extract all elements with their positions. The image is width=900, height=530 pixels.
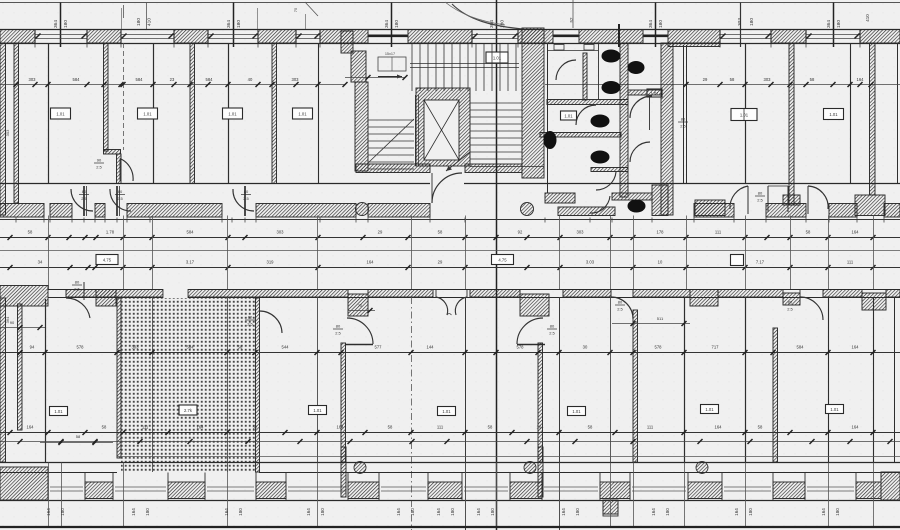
svg-text:164: 164 xyxy=(46,508,51,516)
svg-text:180: 180 xyxy=(136,18,142,26)
svg-text:164: 164 xyxy=(224,508,229,516)
svg-text:364: 364 xyxy=(226,20,232,28)
svg-text:58: 58 xyxy=(730,77,735,82)
svg-text:511: 511 xyxy=(657,316,664,321)
svg-text:180: 180 xyxy=(835,508,840,516)
svg-text:2.5: 2.5 xyxy=(787,307,793,312)
svg-text:164: 164 xyxy=(537,425,545,430)
svg-text:584: 584 xyxy=(187,230,195,235)
svg-text:303: 303 xyxy=(29,77,37,82)
svg-text:364: 364 xyxy=(53,20,59,28)
svg-text:303: 303 xyxy=(577,230,585,235)
svg-text:3.03: 3.03 xyxy=(586,260,595,265)
svg-text:3.17: 3.17 xyxy=(186,260,195,265)
svg-text:178: 178 xyxy=(657,230,665,235)
svg-text:180: 180 xyxy=(575,508,580,516)
svg-text:80: 80 xyxy=(618,300,623,305)
svg-text:1.01: 1.01 xyxy=(705,407,714,412)
svg-text:23: 23 xyxy=(170,77,175,82)
svg-text:1.01: 1.01 xyxy=(829,112,838,117)
svg-text:180: 180 xyxy=(749,18,755,26)
svg-text:164: 164 xyxy=(197,425,205,430)
svg-text:2.5: 2.5 xyxy=(247,322,253,327)
svg-text:180: 180 xyxy=(450,508,455,516)
svg-text:34: 34 xyxy=(38,260,43,265)
svg-text:2.5: 2.5 xyxy=(243,196,249,201)
svg-text:58: 58 xyxy=(488,425,493,430)
svg-text:180: 180 xyxy=(410,508,415,516)
svg-text:29: 29 xyxy=(703,77,708,82)
svg-text:180: 180 xyxy=(60,508,65,516)
svg-text:303: 303 xyxy=(764,77,772,82)
svg-text:2.5: 2.5 xyxy=(74,287,80,292)
svg-text:410: 410 xyxy=(147,18,153,26)
svg-text:58: 58 xyxy=(438,230,443,235)
svg-text:180: 180 xyxy=(490,508,495,516)
svg-text:1.01: 1.01 xyxy=(56,112,65,117)
svg-text:80: 80 xyxy=(248,315,253,320)
svg-text:1.01: 1.01 xyxy=(143,112,152,117)
svg-text:80: 80 xyxy=(75,280,80,285)
svg-text:584: 584 xyxy=(187,345,195,350)
svg-text:111: 111 xyxy=(847,260,854,265)
svg-text:1.01: 1.01 xyxy=(572,409,581,414)
svg-text:15x17: 15x17 xyxy=(385,52,395,56)
svg-text:80: 80 xyxy=(336,324,341,329)
svg-text:717: 717 xyxy=(712,345,720,350)
svg-text:180: 180 xyxy=(748,508,753,516)
svg-text:2.7k: 2.7k xyxy=(184,408,193,413)
svg-text:164: 164 xyxy=(651,508,656,516)
svg-text:577: 577 xyxy=(375,345,383,350)
svg-text:58: 58 xyxy=(102,425,107,430)
svg-text:1.01: 1.01 xyxy=(564,114,573,119)
svg-text:70: 70 xyxy=(358,303,363,308)
svg-text:80: 80 xyxy=(82,189,87,194)
svg-text:364: 364 xyxy=(826,20,832,28)
svg-text:2.5: 2.5 xyxy=(617,307,623,312)
svg-text:111: 111 xyxy=(647,425,654,430)
svg-text:1.01: 1.01 xyxy=(493,56,502,61)
svg-text:80: 80 xyxy=(681,117,686,122)
svg-text:164: 164 xyxy=(715,425,723,430)
svg-text:578: 578 xyxy=(655,345,663,350)
svg-text:80: 80 xyxy=(118,189,123,194)
svg-text:180: 180 xyxy=(394,20,400,28)
svg-text:164: 164 xyxy=(561,508,566,516)
svg-text:58: 58 xyxy=(810,77,815,82)
svg-text:164: 164 xyxy=(367,260,375,265)
svg-text:164: 164 xyxy=(476,508,481,516)
svg-text:111: 111 xyxy=(437,425,444,430)
svg-text:2.5: 2.5 xyxy=(335,331,341,336)
svg-text:164: 164 xyxy=(852,425,860,430)
svg-text:164: 164 xyxy=(852,230,860,235)
svg-text:58: 58 xyxy=(588,425,593,430)
svg-text:584: 584 xyxy=(206,77,214,82)
svg-text:180: 180 xyxy=(63,20,69,28)
svg-text:1.01: 1.01 xyxy=(54,409,63,414)
svg-text:40: 40 xyxy=(248,77,253,82)
svg-text:2.5: 2.5 xyxy=(757,198,763,203)
svg-text:164: 164 xyxy=(396,508,401,516)
svg-text:180: 180 xyxy=(320,508,325,516)
svg-text:2.5: 2.5 xyxy=(81,196,87,201)
svg-text:1.01: 1.01 xyxy=(442,409,451,414)
svg-text:29: 29 xyxy=(438,260,443,265)
svg-text:544: 544 xyxy=(282,345,290,350)
svg-text:80: 80 xyxy=(758,191,763,196)
svg-text:180: 180 xyxy=(665,508,670,516)
svg-text:90: 90 xyxy=(97,158,102,163)
svg-text:58: 58 xyxy=(28,230,33,235)
svg-text:29: 29 xyxy=(378,230,383,235)
svg-text:164: 164 xyxy=(27,425,35,430)
svg-text:92: 92 xyxy=(518,230,523,235)
svg-text:1.01: 1.01 xyxy=(298,112,307,117)
svg-text:180: 180 xyxy=(236,20,242,28)
svg-text:303: 303 xyxy=(5,129,10,136)
svg-text:319: 319 xyxy=(267,260,275,265)
svg-text:1.01: 1.01 xyxy=(313,408,322,413)
svg-text:58: 58 xyxy=(238,345,243,350)
svg-text:164: 164 xyxy=(734,508,739,516)
svg-text:2.5: 2.5 xyxy=(680,124,686,129)
svg-text:164: 164 xyxy=(436,508,441,516)
svg-text:75: 75 xyxy=(293,7,298,12)
svg-text:180: 180 xyxy=(238,508,243,516)
svg-text:164: 164 xyxy=(337,425,345,430)
svg-text:578: 578 xyxy=(77,345,85,350)
svg-text:4.75: 4.75 xyxy=(498,258,507,263)
svg-text:164: 164 xyxy=(131,508,136,516)
svg-text:80: 80 xyxy=(788,300,793,305)
svg-text:364: 364 xyxy=(648,20,654,28)
svg-text:58: 58 xyxy=(388,425,393,430)
svg-text:180: 180 xyxy=(145,508,150,516)
svg-text:164: 164 xyxy=(857,77,865,82)
svg-text:4.75: 4.75 xyxy=(103,258,112,263)
svg-text:144: 144 xyxy=(427,345,435,350)
svg-text:164: 164 xyxy=(852,345,860,350)
svg-text:58: 58 xyxy=(806,230,811,235)
svg-text:180: 180 xyxy=(658,20,664,28)
svg-text:180: 180 xyxy=(836,20,842,28)
svg-text:410: 410 xyxy=(865,14,870,22)
svg-text:1.78: 1.78 xyxy=(106,230,115,235)
svg-text:10: 10 xyxy=(658,260,663,265)
svg-text:2.5: 2.5 xyxy=(96,165,102,170)
svg-text:2.5: 2.5 xyxy=(549,331,555,336)
svg-text:90: 90 xyxy=(10,320,15,325)
svg-text:58: 58 xyxy=(76,434,81,439)
svg-text:584: 584 xyxy=(73,77,81,82)
svg-text:2.5: 2.5 xyxy=(117,196,123,201)
svg-text:111: 111 xyxy=(715,230,722,235)
svg-text:58: 58 xyxy=(758,425,763,430)
svg-text:80: 80 xyxy=(244,189,249,194)
svg-text:94: 94 xyxy=(30,345,35,350)
svg-text:584: 584 xyxy=(797,345,805,350)
svg-text:364: 364 xyxy=(5,316,10,323)
svg-text:584: 584 xyxy=(136,77,144,82)
svg-text:111: 111 xyxy=(142,425,149,430)
svg-text:303: 303 xyxy=(292,77,300,82)
svg-text:30: 30 xyxy=(583,345,588,350)
svg-text:80: 80 xyxy=(550,324,555,329)
svg-text:7.17: 7.17 xyxy=(756,260,765,265)
svg-text:364: 364 xyxy=(384,20,390,28)
svg-text:1.01: 1.01 xyxy=(228,112,237,117)
svg-text:578: 578 xyxy=(517,345,525,350)
svg-text:1.01: 1.01 xyxy=(830,407,839,412)
svg-text:164: 164 xyxy=(306,508,311,516)
svg-text:164: 164 xyxy=(821,508,826,516)
svg-text:303: 303 xyxy=(132,345,140,350)
svg-text:58: 58 xyxy=(253,425,258,430)
svg-text:303: 303 xyxy=(277,230,285,235)
